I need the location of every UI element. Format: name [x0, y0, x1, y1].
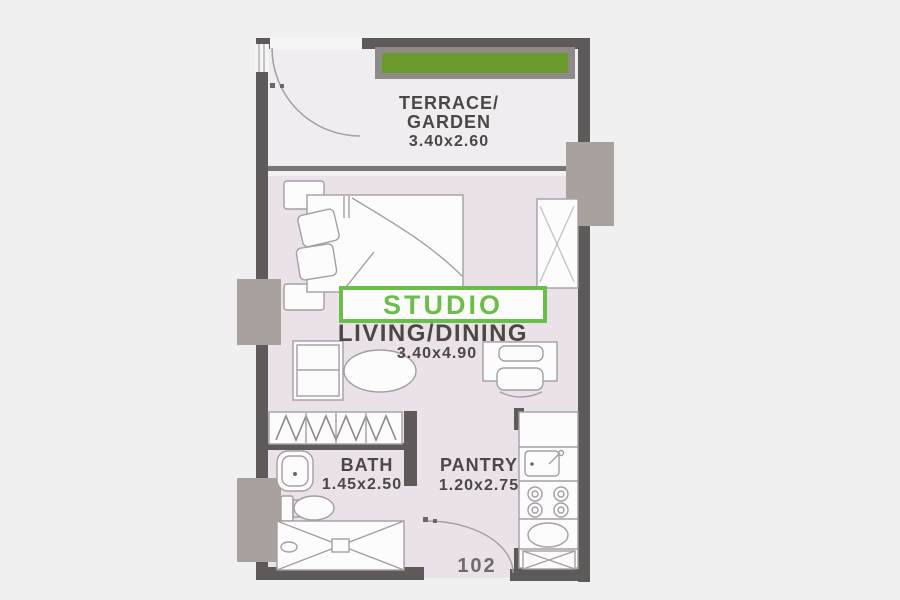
- pillow-icon: [296, 243, 338, 280]
- cabinet-icon: [293, 341, 343, 400]
- terrace-dimensions: 3.40x2.60: [409, 133, 489, 150]
- kitchen-sink-icon: [525, 451, 564, 477]
- terrace-label-2: GARDEN: [407, 112, 491, 132]
- shower-icon: [277, 521, 404, 570]
- door-stop-mark: [433, 519, 437, 523]
- washing-machine-icon: [528, 523, 568, 547]
- terrace-divider-wall: [268, 166, 578, 171]
- washbasin-icon: [277, 451, 313, 491]
- floor-plan-svg: TERRACE/ GARDEN 3.40x2.60: [0, 0, 900, 600]
- door-stop-mark: [270, 83, 275, 88]
- floor-plan: TERRACE/ GARDEN 3.40x2.60: [0, 0, 900, 600]
- column-left-bottom: [237, 478, 281, 562]
- toilet-icon: [281, 496, 334, 521]
- door-stop-mark: [423, 517, 428, 522]
- bed-icon: [296, 195, 463, 292]
- door-stop-mark: [280, 84, 284, 88]
- pantry-label: PANTRY: [440, 455, 518, 475]
- closet-hangers-icon: [269, 412, 402, 444]
- studio-label: LIVING/DINING: [338, 320, 528, 347]
- terrace-window-opening: [255, 44, 269, 72]
- pantry-dimensions: 1.20x2.75: [439, 477, 519, 494]
- unit-number: 102: [457, 555, 496, 577]
- dining-chair-icon: [497, 368, 543, 390]
- storage-box-icon: [523, 551, 575, 569]
- studio-tag: STUDIO: [383, 290, 503, 320]
- column-left-middle: [237, 279, 281, 345]
- wardrobe-icon: [537, 199, 578, 288]
- planter-icon: [382, 53, 568, 73]
- terrace-label: TERRACE/: [399, 93, 499, 113]
- bath-label: BATH: [341, 455, 394, 475]
- studio-dimensions: 3.40x4.90: [397, 345, 477, 362]
- terrace-door-opening: [270, 37, 362, 50]
- dining-chair-icon: [499, 346, 543, 361]
- bath-dimensions: 1.45x2.50: [322, 476, 402, 493]
- wall-right: [578, 38, 590, 582]
- terrace-divider-track: [268, 171, 578, 176]
